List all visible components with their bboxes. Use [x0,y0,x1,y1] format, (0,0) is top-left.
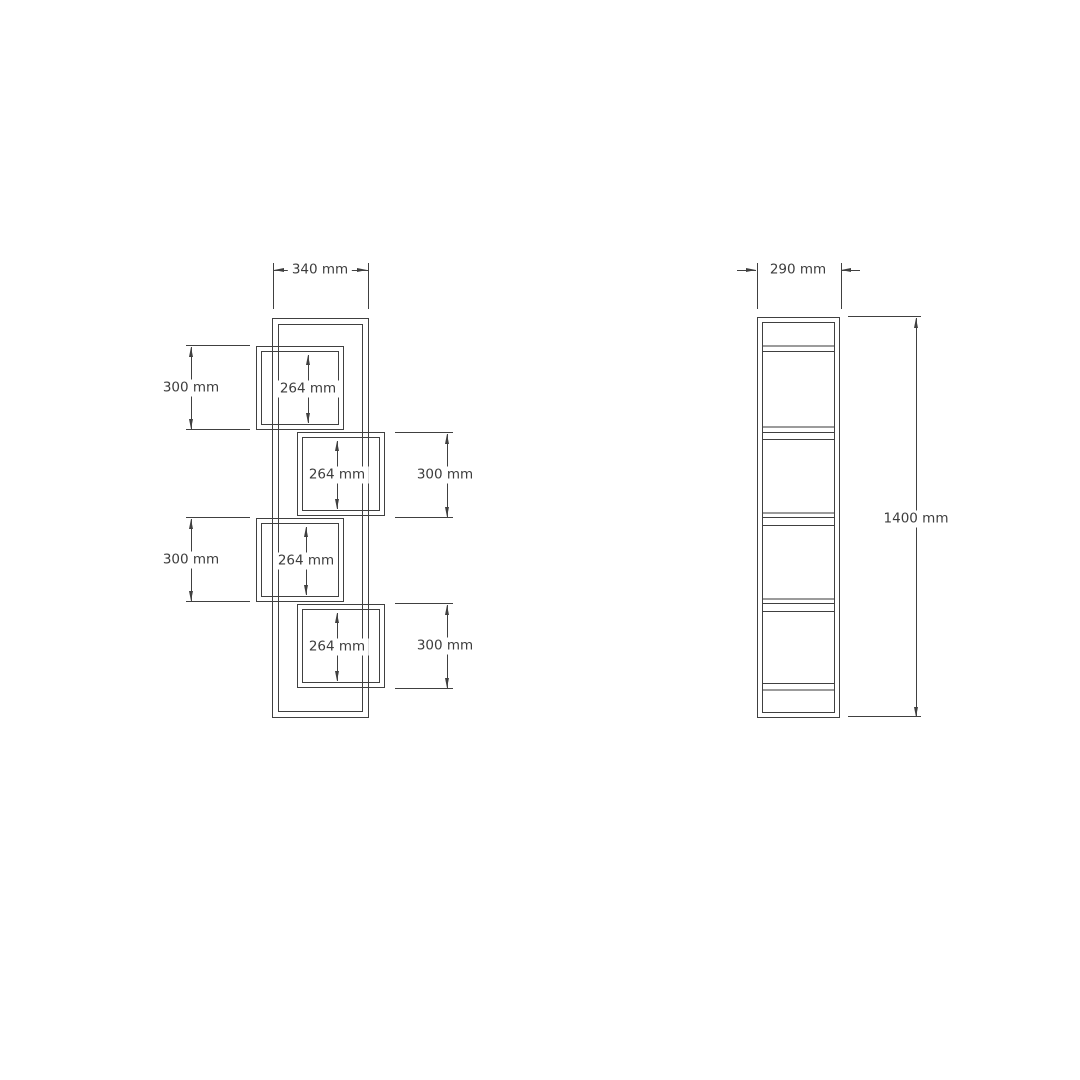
arrowhead-up [189,519,193,529]
extension-line [186,601,250,602]
dim-label-340: 340 mm [288,262,352,279]
dim-label-264: 264 mm [276,381,340,398]
arrowhead-up [445,605,449,615]
dim-label-1400: 1400 mm [880,511,953,528]
arrowhead-down [304,585,308,595]
arrowhead-right [357,268,367,272]
arrowhead-left [841,268,851,272]
dim-label-300: 300 mm [413,467,477,484]
arrowhead-down [335,671,339,681]
dim-label-290: 290 mm [766,262,830,279]
arrowhead-up [304,527,308,537]
dim-label-300: 300 mm [159,552,223,569]
dim-label-300: 300 mm [413,638,477,655]
arrowhead-down [189,591,193,601]
extension-line [395,517,453,518]
extension-line [848,316,921,317]
arrowhead-down [335,499,339,509]
shelf-panel-line [763,345,834,347]
arrowhead-down [189,419,193,429]
arrowhead-left [274,268,284,272]
shelf-line [763,683,834,684]
shelf-panel-line [763,598,834,600]
shelf-line [763,525,834,526]
arrowhead-up [914,318,918,328]
dim-label-300: 300 mm [159,380,223,397]
shelf-panel-line [763,512,834,514]
extension-line [186,429,250,430]
shelf-line [763,351,834,352]
arrowhead-down [445,507,449,517]
extension-line [186,517,250,518]
extension-line [186,345,250,346]
technical-drawing-page: 340 mm 300 mm 300 mm 300 mm [0,0,1080,1080]
shelf-panel-line [763,426,834,428]
arrowhead-down [445,678,449,688]
dim-label-264: 264 mm [305,639,369,656]
dim-label-264: 264 mm [274,553,338,570]
shelf-line [763,439,834,440]
extension-line [395,688,453,689]
arrowhead-up [335,441,339,451]
extension-line [848,716,921,717]
dim-label-264: 264 mm [305,467,369,484]
arrowhead-down [306,413,310,423]
arrowhead-up [445,434,449,444]
arrowhead-up [335,613,339,623]
shelf-line [763,517,834,518]
arrowhead-right [746,268,756,272]
shelf-line [763,611,834,612]
shelf-line [763,432,834,433]
arrowhead-down [914,707,918,717]
extension-line [757,263,758,309]
arrowhead-up [306,355,310,365]
arrowhead-up [189,347,193,357]
shelf-line [763,603,834,604]
shelf-panel-line [763,689,834,691]
